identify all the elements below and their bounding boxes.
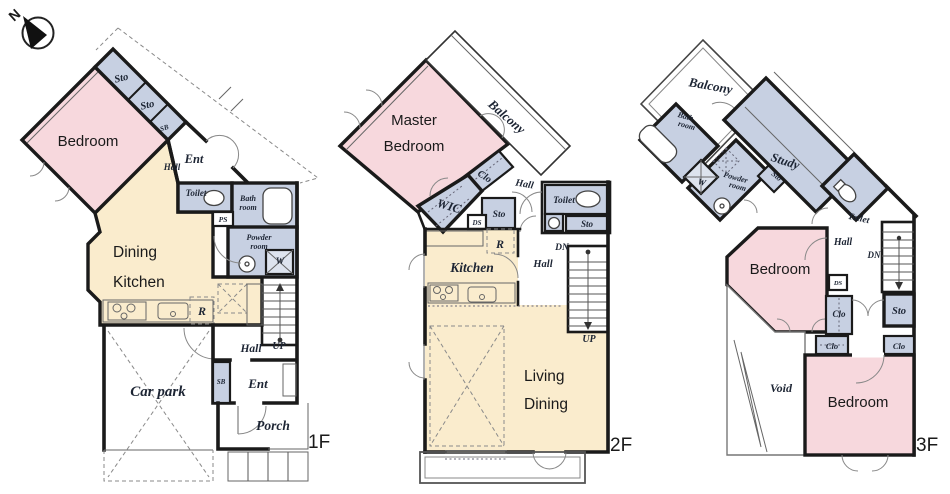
floor-tag-3f: 3F (916, 435, 938, 456)
label-dn-2f: DN (554, 243, 570, 253)
label-ds-2f: DS (472, 219, 482, 227)
floor-plan-2f: Master Bedroom Balcony Clo WIC DS Sto Ha… (340, 31, 632, 483)
label-powder-1-1f: Powder (247, 233, 273, 242)
label-hall-1f: Hall (239, 343, 262, 355)
label-clo-right-3f: Clo (893, 341, 905, 351)
label-toilet-1f: Toilet (186, 188, 207, 198)
toilet-fixture-icon-2f (576, 191, 600, 207)
floor-tag-2f: 2F (610, 435, 632, 456)
staircase-1f (262, 277, 297, 345)
bathtub-icon-1f (263, 188, 292, 224)
compass-north-label: N (5, 6, 23, 25)
label-up-1f: UP (272, 341, 286, 352)
entry-steps-1f (228, 452, 308, 481)
label-sto-b-2f: Sto (581, 219, 594, 229)
label-porch-1f: Porch (256, 418, 290, 433)
label-sto-a-2f: Sto (493, 210, 506, 220)
entrance-1f (168, 122, 247, 183)
label-kitchen-2f: Kitchen (449, 260, 494, 275)
label-r-1f: R (197, 304, 206, 318)
label-bedroom-1f: Bedroom (58, 133, 119, 150)
label-bath-2-1f: room (239, 203, 256, 212)
label-dn-3f: DN (867, 250, 881, 260)
label-sto-3f: Sto (892, 306, 906, 317)
label-ps-1f: PS (219, 215, 228, 224)
label-powder-2-1f: room (250, 242, 267, 251)
floor-plan-3f: Balcony Bath room W Powder room Sto Stud… (636, 40, 938, 471)
label-clo-left-3f: Clo (826, 341, 838, 351)
label-ent-upper-1f: Ent (184, 152, 204, 166)
label-living-2-2f: Dining (524, 396, 568, 413)
staircase-2f (568, 246, 608, 332)
label-sb-1f: SB (217, 378, 226, 386)
car-park-1f (104, 327, 213, 481)
staircase-3f (882, 222, 914, 292)
label-bath-1-1f: Bath (239, 194, 257, 203)
floor-plan-drawing: N (0, 0, 950, 494)
label-hall-3f: Hall (833, 237, 853, 248)
label-hall-upper-2f: Hall (513, 177, 534, 191)
label-toilet-3f: Toilet (847, 212, 871, 226)
label-master-1-2f: Master (391, 112, 437, 129)
label-hall-upper-1f: Hall (163, 162, 181, 172)
label-clo-mid-3f: Clo (832, 309, 846, 319)
label-ds-3f: DS (833, 280, 843, 287)
label-master-2-2f: Bedroom (384, 138, 445, 155)
label-living-1-2f: Living (524, 368, 565, 385)
label-void-3f: Void (770, 381, 793, 395)
label-ent-1f: Ent (247, 376, 268, 391)
floor-tag-1f: 1F (308, 432, 330, 453)
label-w-1f: W (276, 257, 285, 267)
label-bedroom-b-3f: Bedroom (828, 394, 889, 411)
label-bedroom-a-3f: Bedroom (750, 261, 811, 278)
label-dining-1-1f: Dining (113, 244, 157, 261)
toilet-block-2f (520, 182, 610, 233)
label-dining-2-1f: Kitchen (113, 274, 165, 291)
toilet-fixture-icon (204, 191, 224, 206)
balcony-lower-2f (420, 452, 585, 483)
label-toilet-2f: Toilet (553, 196, 575, 206)
label-hall-2f: Hall (532, 259, 552, 270)
floor-plan-page: N (0, 0, 950, 494)
shoe-cabinet-1f (283, 364, 296, 396)
label-r-2f: R (495, 237, 504, 251)
compass-rose: N (5, 6, 53, 49)
label-car-park-1f: Car park (130, 384, 186, 400)
floor-plan-1f: Bedroom Sto Sto SB Hall Ent Toilet PS Ba… (22, 28, 330, 481)
living-dining-room-2f (425, 305, 608, 452)
label-up-2f: UP (582, 334, 596, 345)
